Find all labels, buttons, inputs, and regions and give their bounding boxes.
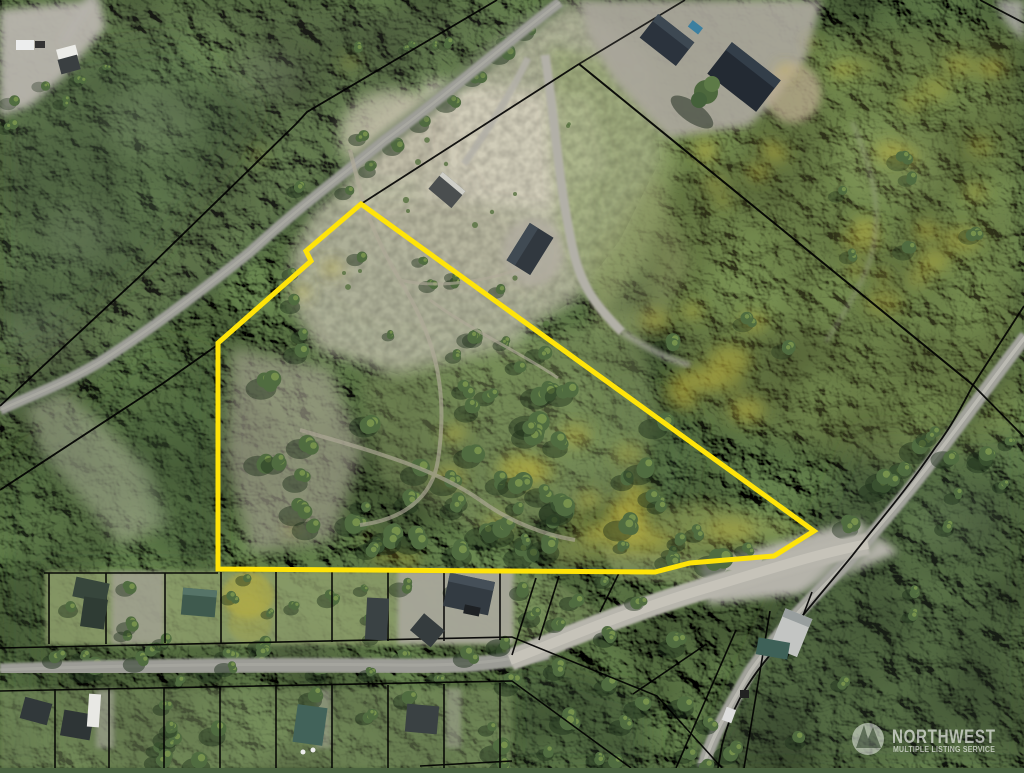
svg-text:MULTIPLE LISTING SERVICE: MULTIPLE LISTING SERVICE xyxy=(893,744,995,754)
